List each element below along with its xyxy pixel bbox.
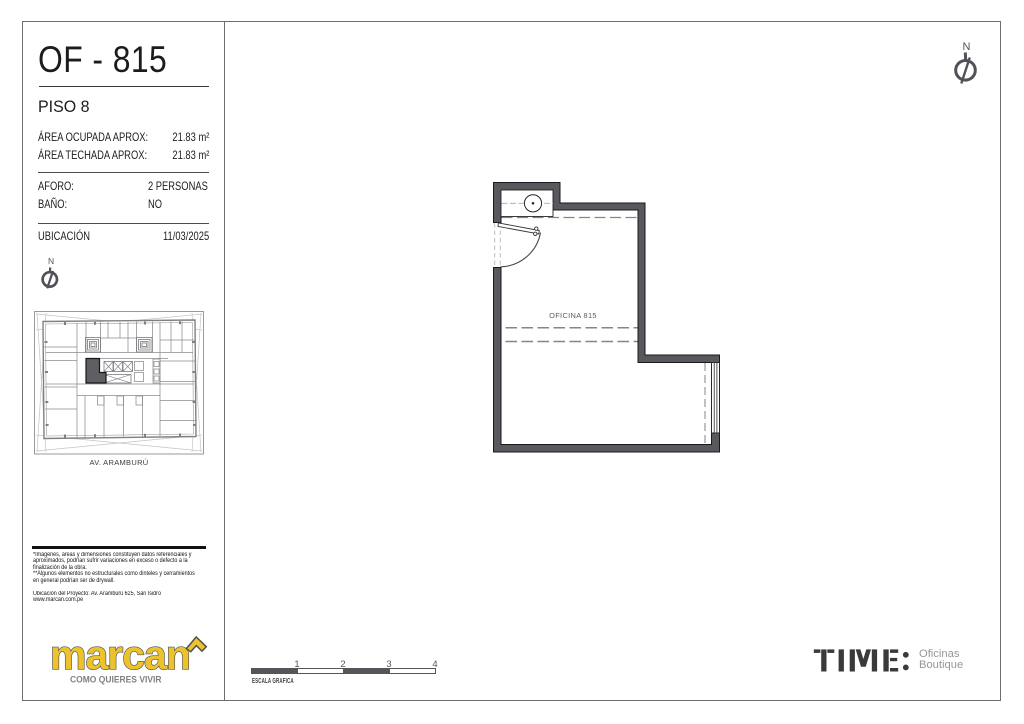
- svg-text:OFICINA 815: OFICINA 815: [549, 311, 597, 320]
- svg-text:marcan: marcan: [50, 632, 190, 678]
- svg-text:N: N: [963, 41, 971, 53]
- svg-text:COMO QUIERES VIVIR: COMO QUIERES VIVIR: [70, 675, 162, 686]
- svg-text:N: N: [48, 256, 54, 266]
